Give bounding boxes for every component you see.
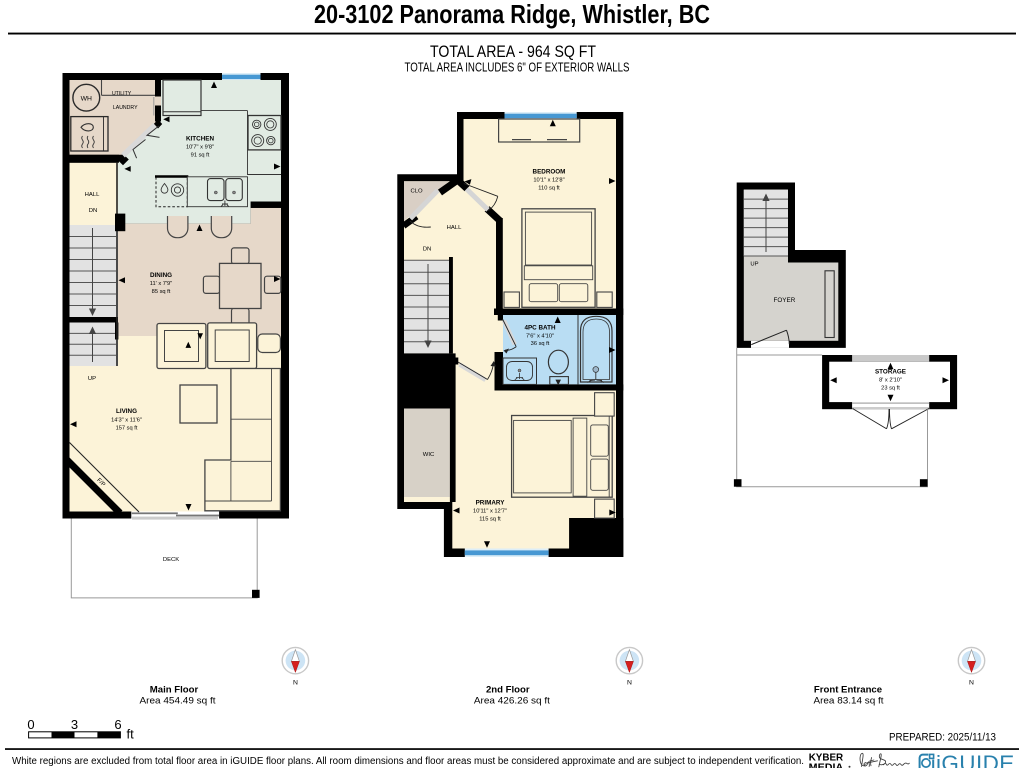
svg-text:N: N	[627, 680, 632, 687]
svg-text:Main Floor: Main Floor	[150, 685, 199, 696]
svg-text:4PC BATH: 4PC BATH	[524, 325, 555, 332]
svg-text:11' x 7'9": 11' x 7'9"	[150, 281, 172, 287]
svg-text:Area 454.49 sq ft: Area 454.49 sq ft	[140, 696, 216, 706]
svg-text:DINING: DINING	[150, 272, 172, 279]
svg-text:85 sq ft: 85 sq ft	[152, 289, 171, 295]
svg-text:WIC: WIC	[423, 452, 435, 458]
svg-text:3: 3	[71, 717, 78, 732]
svg-text:LIVING: LIVING	[116, 408, 137, 415]
svg-text:TOTAL AREA - 964 SQ FT: TOTAL AREA - 964 SQ FT	[430, 42, 596, 61]
svg-text:UTILITY: UTILITY	[112, 91, 132, 97]
svg-text:23 sq ft: 23 sq ft	[881, 385, 900, 391]
svg-text:2nd Floor: 2nd Floor	[486, 685, 530, 696]
svg-text:HALL: HALL	[447, 225, 462, 231]
svg-text:DECK: DECK	[163, 557, 179, 563]
svg-text:Front Entrance: Front Entrance	[814, 685, 882, 696]
svg-text:TOTAL AREA INCLUDES 6" OF EXTE: TOTAL AREA INCLUDES 6" OF EXTERIOR WALLS	[405, 60, 630, 75]
svg-text:DN: DN	[89, 208, 98, 214]
svg-text:CLO: CLO	[410, 189, 423, 195]
svg-text:Area 83.14 sq ft: Area 83.14 sq ft	[814, 696, 884, 706]
svg-text:N: N	[293, 680, 298, 687]
svg-text:20-3102 Panorama Ridge, Whistl: 20-3102 Panorama Ridge, Whistler, BC	[314, 0, 710, 29]
svg-text:91 sq ft: 91 sq ft	[191, 152, 210, 158]
svg-text:7'6" x 4'10": 7'6" x 4'10"	[526, 333, 554, 339]
svg-text:PREPARED: 2025/11/13: PREPARED: 2025/11/13	[889, 732, 996, 744]
svg-text:14'3" x 11'6": 14'3" x 11'6"	[111, 417, 142, 423]
svg-text:115 sq ft: 115 sq ft	[479, 517, 501, 523]
svg-text:LAUNDRY: LAUNDRY	[113, 105, 138, 111]
svg-text:Area 426.26 sq ft: Area 426.26 sq ft	[474, 696, 550, 706]
svg-text:10'11" x 12'7": 10'11" x 12'7"	[473, 509, 507, 515]
svg-text:10'7" x 9'8": 10'7" x 9'8"	[186, 145, 214, 151]
svg-text:STORAGE: STORAGE	[875, 369, 906, 376]
svg-text:iGUIDE: iGUIDE	[936, 751, 1015, 768]
svg-text:BEDROOM: BEDROOM	[533, 169, 566, 176]
svg-text:157 sq ft: 157 sq ft	[116, 425, 138, 431]
svg-text:ft: ft	[127, 727, 135, 742]
svg-text:KITCHEN: KITCHEN	[186, 136, 214, 143]
svg-text:White regions are excluded fro: White regions are excluded from total fl…	[12, 756, 804, 767]
svg-text:MEDIA: MEDIA	[809, 762, 844, 768]
svg-text:6: 6	[114, 717, 121, 732]
svg-text:FOYER: FOYER	[774, 297, 796, 304]
svg-text:PRIMARY: PRIMARY	[476, 500, 506, 507]
svg-text:10'1" x 12'8": 10'1" x 12'8"	[533, 178, 564, 184]
svg-text:UP: UP	[88, 376, 96, 382]
svg-text:8' x 2'10": 8' x 2'10"	[879, 378, 902, 384]
svg-text:WH: WH	[81, 95, 92, 102]
svg-text:DN: DN	[423, 247, 432, 253]
svg-text:110 sq ft: 110 sq ft	[538, 186, 560, 192]
svg-text:N: N	[969, 680, 974, 687]
svg-text:HALL: HALL	[85, 192, 100, 198]
svg-text:UP: UP	[750, 262, 758, 268]
svg-text:36 sq ft: 36 sq ft	[531, 341, 550, 347]
svg-text:0: 0	[27, 717, 34, 732]
